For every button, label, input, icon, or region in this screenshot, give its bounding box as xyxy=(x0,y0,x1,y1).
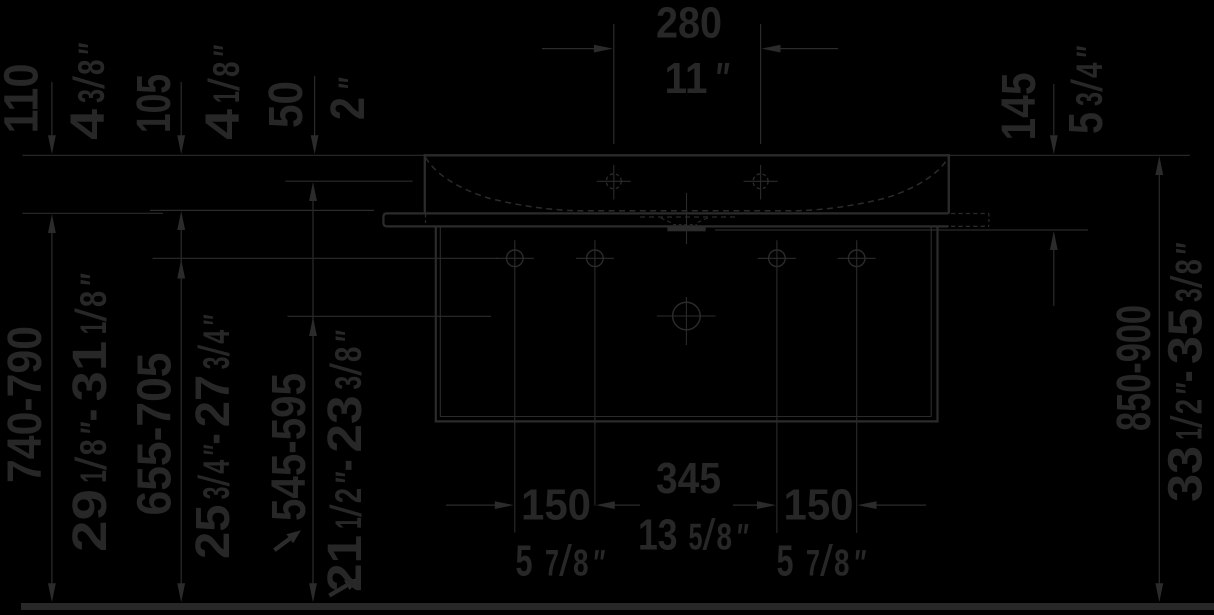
svg-text:/: / xyxy=(820,537,834,586)
svg-text:/: / xyxy=(67,307,116,321)
svg-text:1: 1 xyxy=(1169,428,1210,440)
svg-text:5: 5 xyxy=(777,537,794,586)
svg-text:8: 8 xyxy=(71,60,112,76)
svg-text:″: ″ xyxy=(196,444,237,455)
svg-text:/: / xyxy=(1063,78,1112,92)
svg-text:″: ″ xyxy=(594,543,606,584)
svg-text:7: 7 xyxy=(806,543,820,584)
svg-text:27: 27 xyxy=(187,375,240,428)
svg-text:110: 110 xyxy=(0,64,49,134)
svg-text:/: / xyxy=(65,75,114,89)
svg-text:″: ″ xyxy=(196,314,237,325)
svg-text:13: 13 xyxy=(638,511,678,560)
svg-text:23: 23 xyxy=(319,396,372,453)
svg-text:1: 1 xyxy=(206,91,247,103)
svg-text:″: ″ xyxy=(73,273,114,286)
svg-text:8: 8 xyxy=(1169,259,1210,274)
svg-text:4: 4 xyxy=(196,330,237,344)
svg-text:4: 4 xyxy=(196,460,237,474)
svg-text:25: 25 xyxy=(187,505,240,559)
svg-text:8: 8 xyxy=(834,543,850,584)
svg-text:-: - xyxy=(187,434,240,445)
svg-text:655-705: 655-705 xyxy=(129,353,182,516)
svg-text:/: / xyxy=(1163,275,1212,289)
svg-text:″: ″ xyxy=(71,42,112,54)
svg-text:/: / xyxy=(200,77,249,91)
svg-text:5: 5 xyxy=(689,517,703,558)
svg-text:/: / xyxy=(1163,414,1212,428)
svg-text:345: 345 xyxy=(656,454,721,503)
svg-text:4: 4 xyxy=(1069,62,1110,78)
svg-text:″: ″ xyxy=(73,421,114,434)
svg-text:8: 8 xyxy=(73,439,114,455)
svg-text:/: / xyxy=(190,474,239,487)
svg-text:33: 33 xyxy=(1160,446,1213,502)
svg-text:11: 11 xyxy=(665,54,708,103)
svg-text:-: - xyxy=(1160,371,1213,383)
svg-text:/: / xyxy=(559,537,573,586)
svg-text:-: - xyxy=(64,409,117,422)
svg-text:50: 50 xyxy=(260,81,313,128)
svg-text:/: / xyxy=(190,344,239,357)
svg-text:105: 105 xyxy=(128,74,181,133)
svg-text:29: 29 xyxy=(64,489,117,552)
svg-text:31: 31 xyxy=(64,341,117,402)
svg-text:1: 1 xyxy=(73,322,114,335)
svg-text:″: ″ xyxy=(328,471,369,483)
svg-text:8: 8 xyxy=(206,62,247,78)
svg-text:5: 5 xyxy=(1060,112,1113,134)
svg-text:-: - xyxy=(319,460,372,472)
svg-text:2: 2 xyxy=(322,97,375,120)
svg-text:3: 3 xyxy=(328,376,369,390)
svg-text:4: 4 xyxy=(62,109,115,140)
svg-text:7: 7 xyxy=(545,543,559,584)
svg-text:150: 150 xyxy=(521,481,591,530)
svg-text:4: 4 xyxy=(197,109,250,140)
svg-text:″: ″ xyxy=(331,77,372,89)
svg-text:/: / xyxy=(67,456,116,470)
svg-text:3: 3 xyxy=(196,487,237,500)
svg-text:8: 8 xyxy=(73,291,114,307)
svg-text:/: / xyxy=(322,503,371,517)
svg-text:″: ″ xyxy=(1069,45,1110,57)
svg-text:1: 1 xyxy=(328,517,369,529)
svg-text:5: 5 xyxy=(516,537,533,586)
svg-text:″: ″ xyxy=(1169,242,1210,254)
svg-text:1: 1 xyxy=(73,470,114,483)
svg-text:3: 3 xyxy=(1169,288,1210,302)
svg-text:″: ″ xyxy=(716,54,730,103)
svg-text:3: 3 xyxy=(196,357,237,370)
svg-text:2: 2 xyxy=(1169,399,1210,414)
svg-text:280: 280 xyxy=(656,0,722,48)
svg-text:3: 3 xyxy=(71,89,112,103)
svg-text:850-900: 850-900 xyxy=(1108,305,1161,431)
svg-text:740-790: 740-790 xyxy=(0,326,52,483)
svg-text:3: 3 xyxy=(1069,92,1110,106)
svg-text:8: 8 xyxy=(573,543,589,584)
svg-text:21: 21 xyxy=(319,535,372,592)
svg-text:″: ″ xyxy=(328,330,369,342)
svg-text:8: 8 xyxy=(328,347,369,362)
svg-text:/: / xyxy=(703,511,717,560)
svg-text:2: 2 xyxy=(328,488,369,503)
svg-text:″: ″ xyxy=(206,44,247,56)
svg-text:145: 145 xyxy=(993,73,1046,141)
svg-text:35: 35 xyxy=(1160,308,1213,364)
svg-text:″: ″ xyxy=(737,517,749,558)
svg-text:″: ″ xyxy=(855,543,867,584)
svg-text:″: ″ xyxy=(1169,382,1210,394)
svg-text:545-595: 545-595 xyxy=(263,373,316,521)
svg-text:/: / xyxy=(322,362,371,376)
svg-text:8: 8 xyxy=(717,517,733,558)
svg-text:150: 150 xyxy=(784,481,854,530)
